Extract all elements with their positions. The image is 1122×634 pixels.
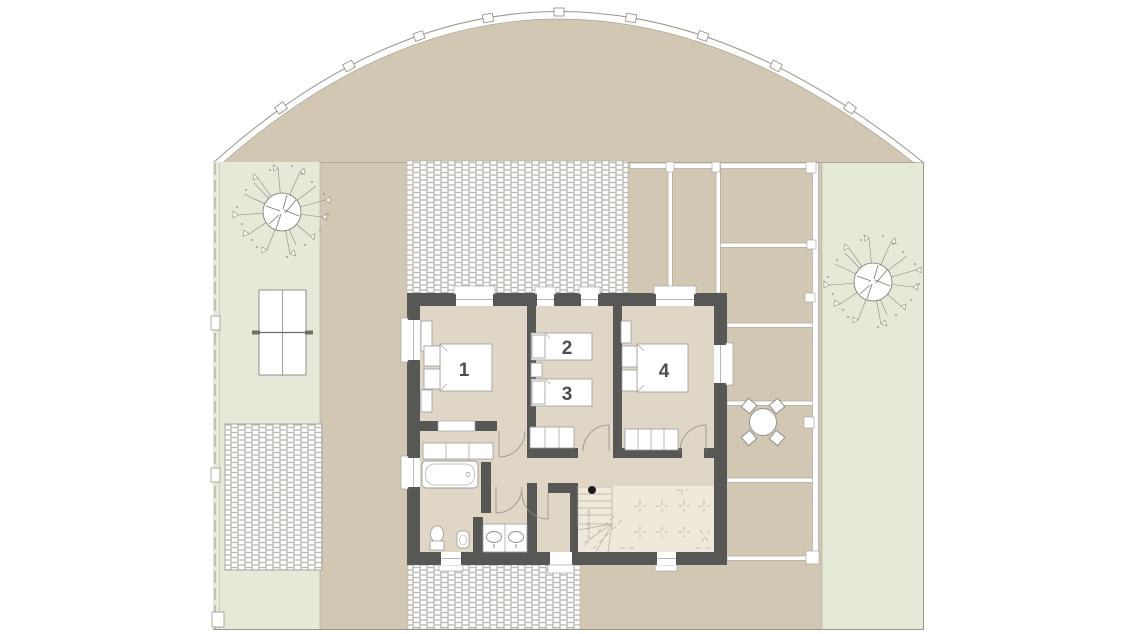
pergola-post: [712, 162, 720, 172]
pillow: [622, 370, 637, 391]
pillow: [424, 369, 440, 389]
wardrobe: [621, 321, 631, 343]
pergola-post: [806, 162, 816, 173]
bathtub: [422, 461, 478, 488]
pillow: [532, 381, 545, 404]
patio-paving-left: [225, 424, 322, 570]
wardrobe: [530, 427, 574, 448]
floor-plan-canvas: 1 2 3: [0, 0, 1122, 634]
toilet: [430, 526, 444, 550]
stair-newel-post: [588, 486, 596, 494]
room-label: 2: [562, 338, 573, 359]
round-table: [750, 409, 777, 436]
nightstand: [531, 363, 542, 377]
entrance-door-opening: [550, 552, 572, 565]
room-label: 1: [459, 360, 470, 381]
room-label: 4: [659, 361, 670, 382]
pergola-post: [804, 417, 814, 428]
cabinet-row: [423, 443, 493, 459]
wardrobe: [625, 429, 678, 450]
pergola-post: [807, 240, 816, 249]
pergola-beam: [727, 478, 818, 482]
pergola-beam: [668, 163, 672, 293]
pergola-beam: [813, 163, 819, 563]
pergola-beam: [630, 163, 818, 169]
fence-post: [212, 612, 224, 627]
pergola-beam: [727, 323, 818, 327]
pergola-beam: [716, 163, 720, 293]
fence-post: [211, 316, 220, 330]
pergola-post: [666, 162, 674, 172]
pergola-post: [806, 551, 819, 564]
terrace-paving-top: [407, 161, 628, 293]
entrance-step: [548, 565, 574, 573]
wardrobe: [421, 390, 432, 412]
house: 1 2 3: [401, 286, 733, 573]
stair-hall-floor: [578, 486, 714, 552]
site-plan-drawing: 1 2 3: [0, 0, 1122, 634]
pillow: [532, 335, 545, 358]
pillow: [424, 346, 440, 366]
fence-post: [211, 468, 220, 482]
pergola-post: [805, 293, 815, 302]
sink-vanity: [483, 524, 527, 552]
table-tennis-table: [252, 290, 313, 375]
pillow: [622, 346, 637, 367]
hand-basin: [457, 531, 469, 548]
lawn-right: [822, 163, 924, 629]
terrace-paving-bottom: [408, 565, 580, 629]
stair-note: 17 x 0.183 = 3.10: [587, 510, 591, 538]
wall-niche: [438, 421, 475, 431]
pergola-beam: [718, 243, 818, 247]
pergola-beam: [727, 556, 818, 560]
room-label: 3: [562, 384, 573, 405]
